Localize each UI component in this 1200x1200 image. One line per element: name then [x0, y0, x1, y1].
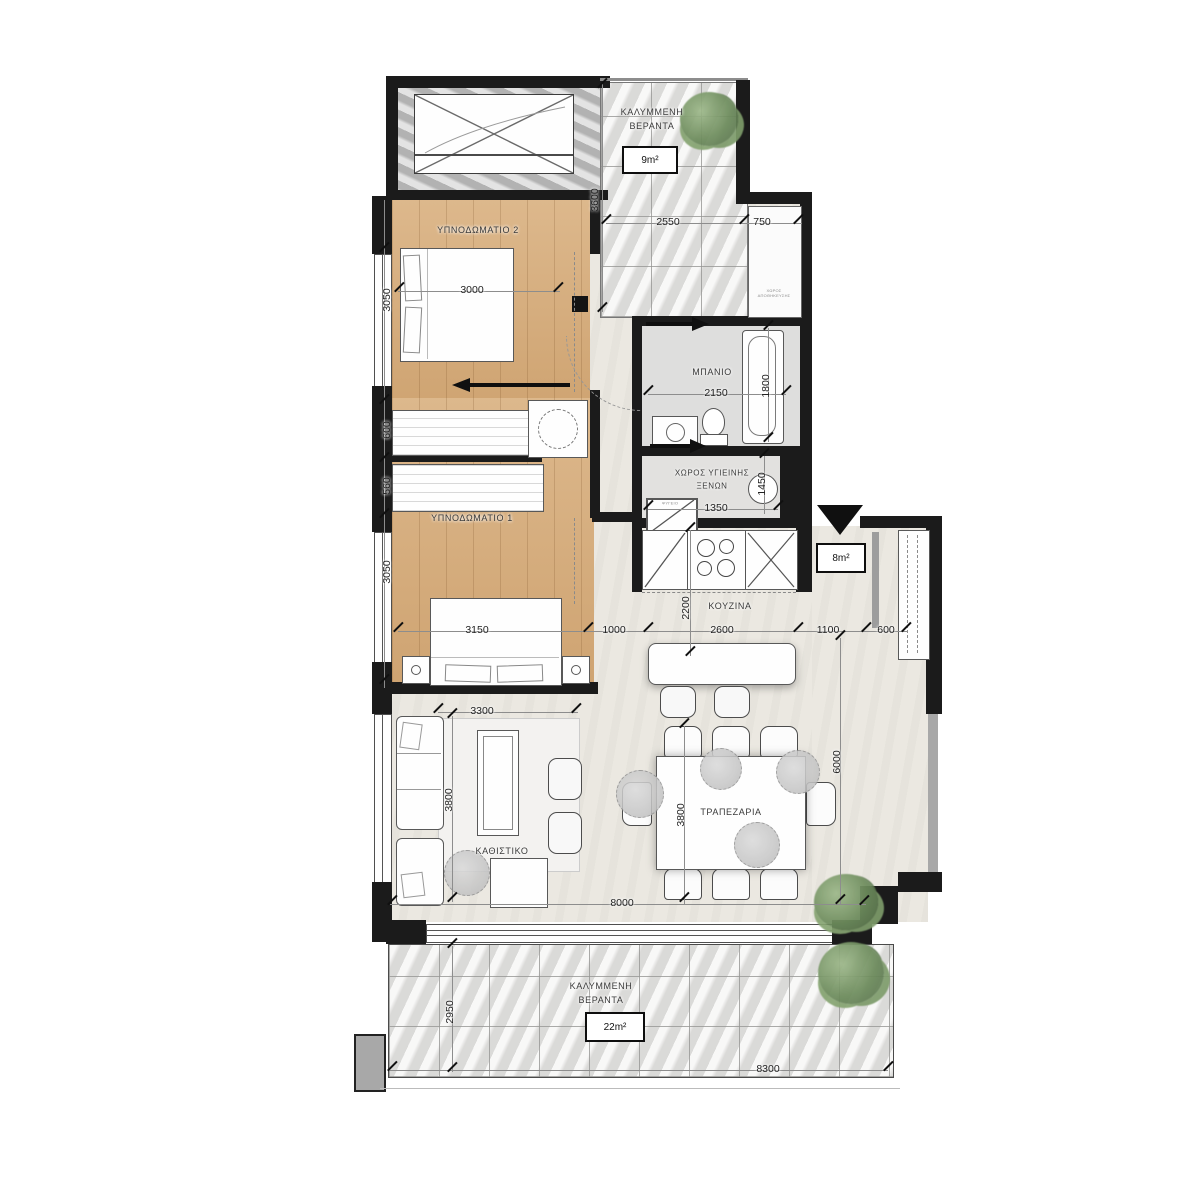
- veranda-top-area: 9m²: [641, 155, 658, 166]
- sliding-door-track: [574, 518, 575, 604]
- wall: [386, 190, 608, 200]
- floor-plan: ΧΩΡΟΣ ΑΠΟΘΗΚΕΥΣΗΣ: [0, 0, 1200, 1200]
- wall: [590, 390, 600, 518]
- washing-machine: [538, 409, 578, 449]
- wall: [898, 872, 942, 892]
- entrance-arrow: [817, 505, 863, 535]
- door-arrow: [646, 322, 692, 326]
- bed-double: [430, 598, 562, 686]
- shaft-label-l2: ΑΠΟΘΗΚΕΥΣΗΣ: [758, 293, 791, 298]
- door-arrow-head: [692, 317, 709, 331]
- dim-750: 750: [753, 216, 771, 228]
- wall: [780, 450, 812, 526]
- dim-1800: 1800: [760, 374, 772, 397]
- wall: [736, 80, 750, 198]
- window: [374, 532, 392, 664]
- door-arrow: [650, 444, 690, 448]
- counter-divider: [687, 531, 688, 589]
- bedroom2-label: ΥΠΝΟΔΩΜΑΤΙΟ 2: [437, 225, 519, 235]
- dimension-line: [602, 84, 603, 312]
- person-sketch: [734, 822, 780, 868]
- nightstand: [402, 656, 430, 684]
- counter-dashed-line: [642, 592, 796, 593]
- window: [374, 254, 392, 388]
- bar-stool: [660, 686, 696, 718]
- pillow: [403, 307, 422, 354]
- dim-3600: 3600: [589, 188, 601, 211]
- lamp: [571, 665, 581, 675]
- fridge-diagonal: [643, 531, 687, 589]
- window-line: [382, 255, 383, 387]
- blanket-line: [427, 249, 428, 359]
- sliding-door-arrow-head: [452, 378, 470, 392]
- window: [374, 714, 392, 884]
- sink-cross: [746, 531, 796, 589]
- sofa: [396, 716, 444, 830]
- dim-1100: 1100: [817, 624, 840, 636]
- hall-area-badge: 8m²: [816, 543, 866, 573]
- closet-dashed: [917, 535, 918, 653]
- person-sketch: [444, 850, 490, 896]
- armchair: [548, 758, 582, 800]
- sofa-chaise: [396, 838, 444, 906]
- dim-3000: 3000: [460, 284, 483, 296]
- door-arrow-head: [690, 439, 706, 453]
- sliding-door-arrow: [470, 383, 570, 387]
- burner: [717, 559, 735, 577]
- cushion-line: [397, 789, 441, 790]
- bar-stool: [714, 686, 750, 718]
- wall: [392, 456, 542, 462]
- window-line: [382, 533, 383, 663]
- pillow: [399, 722, 422, 751]
- bathroom-label: ΜΠΑΝΙΟ: [692, 367, 732, 377]
- hob: [693, 535, 741, 585]
- side-table: [490, 858, 548, 908]
- dim-8000: 8000: [610, 897, 633, 909]
- pillow: [401, 872, 426, 899]
- wall: [386, 920, 426, 944]
- outline: [380, 1088, 900, 1089]
- dim-600-k: 600: [877, 624, 895, 636]
- dim-8300: 8300: [756, 1063, 779, 1075]
- dim-2600: 2600: [710, 624, 733, 636]
- pillow: [445, 664, 492, 683]
- wall: [592, 512, 640, 522]
- guest-wc-label-l2: ΞΕΝΩΝ: [696, 482, 727, 491]
- dim-1350: 1350: [704, 502, 727, 514]
- burner: [697, 561, 712, 576]
- dim-560-closet: 560: [381, 477, 393, 495]
- wall: [372, 196, 392, 254]
- veranda-top-area-badge: 9m²: [622, 146, 678, 174]
- dining-chair: [712, 868, 750, 900]
- veranda-bottom-area: 22m²: [604, 1022, 627, 1033]
- coffee-table: [477, 730, 519, 836]
- bedroom1-label: ΥΠΝΟΔΩΜΑΤΙΟ 1: [431, 513, 513, 523]
- burner: [719, 539, 734, 554]
- toilet-bowl: [702, 408, 725, 436]
- roof-skylight: [414, 94, 574, 174]
- bed-double: [400, 248, 514, 362]
- dining-chair: [760, 868, 798, 900]
- hall-area: 8m²: [832, 553, 849, 564]
- table-inner: [483, 736, 513, 830]
- window-line: [427, 935, 833, 936]
- pillow: [403, 255, 422, 302]
- dim-1450: 1450: [756, 472, 768, 495]
- dimension-line: [606, 223, 802, 224]
- person-sketch: [616, 770, 664, 818]
- dim-1000: 1000: [602, 624, 625, 636]
- closet-dashed: [907, 535, 908, 653]
- wall-glazing: [928, 714, 938, 874]
- entry-closet: [898, 530, 930, 660]
- dim-3050-bed1: 3050: [381, 560, 393, 583]
- veranda-bottom-area-badge: 22m²: [585, 1012, 645, 1042]
- dining-label: ΤΡΑΠΕΖΑΡΙΑ: [700, 807, 761, 817]
- dim-3800-dining: 3800: [675, 803, 687, 826]
- kitchen-island: [648, 643, 796, 685]
- sliding-window: [426, 924, 834, 943]
- wall: [386, 76, 610, 88]
- veranda-top-label-l2: ΒΕΡΑΝΤΑ: [630, 121, 675, 131]
- dim-600-closet: 600: [381, 421, 393, 439]
- dining-chair: [664, 726, 702, 758]
- plant: [818, 942, 884, 1004]
- dim-3800-living: 3800: [443, 788, 455, 811]
- window-line: [427, 930, 833, 931]
- veranda-bottom-label-l2: ΒΕΡΑΝΤΑ: [579, 995, 624, 1005]
- dimension-line: [438, 712, 578, 713]
- dim-2950: 2950: [444, 1000, 456, 1023]
- guest-wc-label-l1: ΧΩΡΟΣ ΥΓΙΕΙΝΗΣ: [675, 469, 749, 478]
- dim-3300: 3300: [470, 705, 493, 717]
- plant: [814, 874, 878, 930]
- dimension-line: [690, 530, 691, 656]
- fridge-label: ΨΥΓΕΙΟ: [662, 501, 678, 506]
- veranda-top-label-l1: ΚΑΛΥΜΜΕΝΗ: [621, 107, 684, 117]
- dim-6000: 6000: [831, 750, 843, 773]
- kitchen-counter: [642, 530, 798, 590]
- blanket-line: [431, 657, 559, 658]
- veranda-top-edge: [600, 78, 748, 81]
- skylight-cross: [415, 95, 573, 173]
- basin: [666, 423, 685, 442]
- laundry-closet: [528, 400, 588, 458]
- nightstand: [562, 656, 590, 684]
- dim-2150: 2150: [704, 387, 727, 399]
- plant: [680, 92, 738, 146]
- person-sketch: [776, 750, 820, 794]
- shaft-label: ΧΩΡΟΣ ΑΠΟΘΗΚΕΥΣΗΣ: [758, 288, 791, 298]
- entry-door-leaf: [872, 532, 879, 628]
- lamp: [411, 665, 421, 675]
- pillow: [497, 664, 544, 683]
- dimension-line: [384, 200, 385, 688]
- wall: [796, 526, 812, 592]
- person-sketch: [700, 748, 742, 790]
- wall: [386, 76, 398, 198]
- living-label: ΚΑΘΙΣΤΙΚΟ: [475, 846, 528, 856]
- dim-2550: 2550: [656, 216, 679, 228]
- window-line: [382, 715, 383, 883]
- dim-2200: 2200: [680, 596, 692, 619]
- cushion-line: [397, 753, 441, 754]
- burner: [697, 539, 715, 557]
- dimension-line: [390, 1070, 888, 1071]
- kitchen-label: ΚΟΥΖΙΝΑ: [708, 601, 751, 611]
- wardrobe: [392, 464, 544, 512]
- armchair: [548, 812, 582, 854]
- dim-3150: 3150: [465, 624, 488, 636]
- exterior-pier: [354, 1034, 386, 1092]
- wardrobe: [392, 410, 544, 456]
- dim-3050-bed2: 3050: [381, 288, 393, 311]
- veranda-bottom-label-l1: ΚΑΛΥΜΜΕΝΗ: [570, 981, 633, 991]
